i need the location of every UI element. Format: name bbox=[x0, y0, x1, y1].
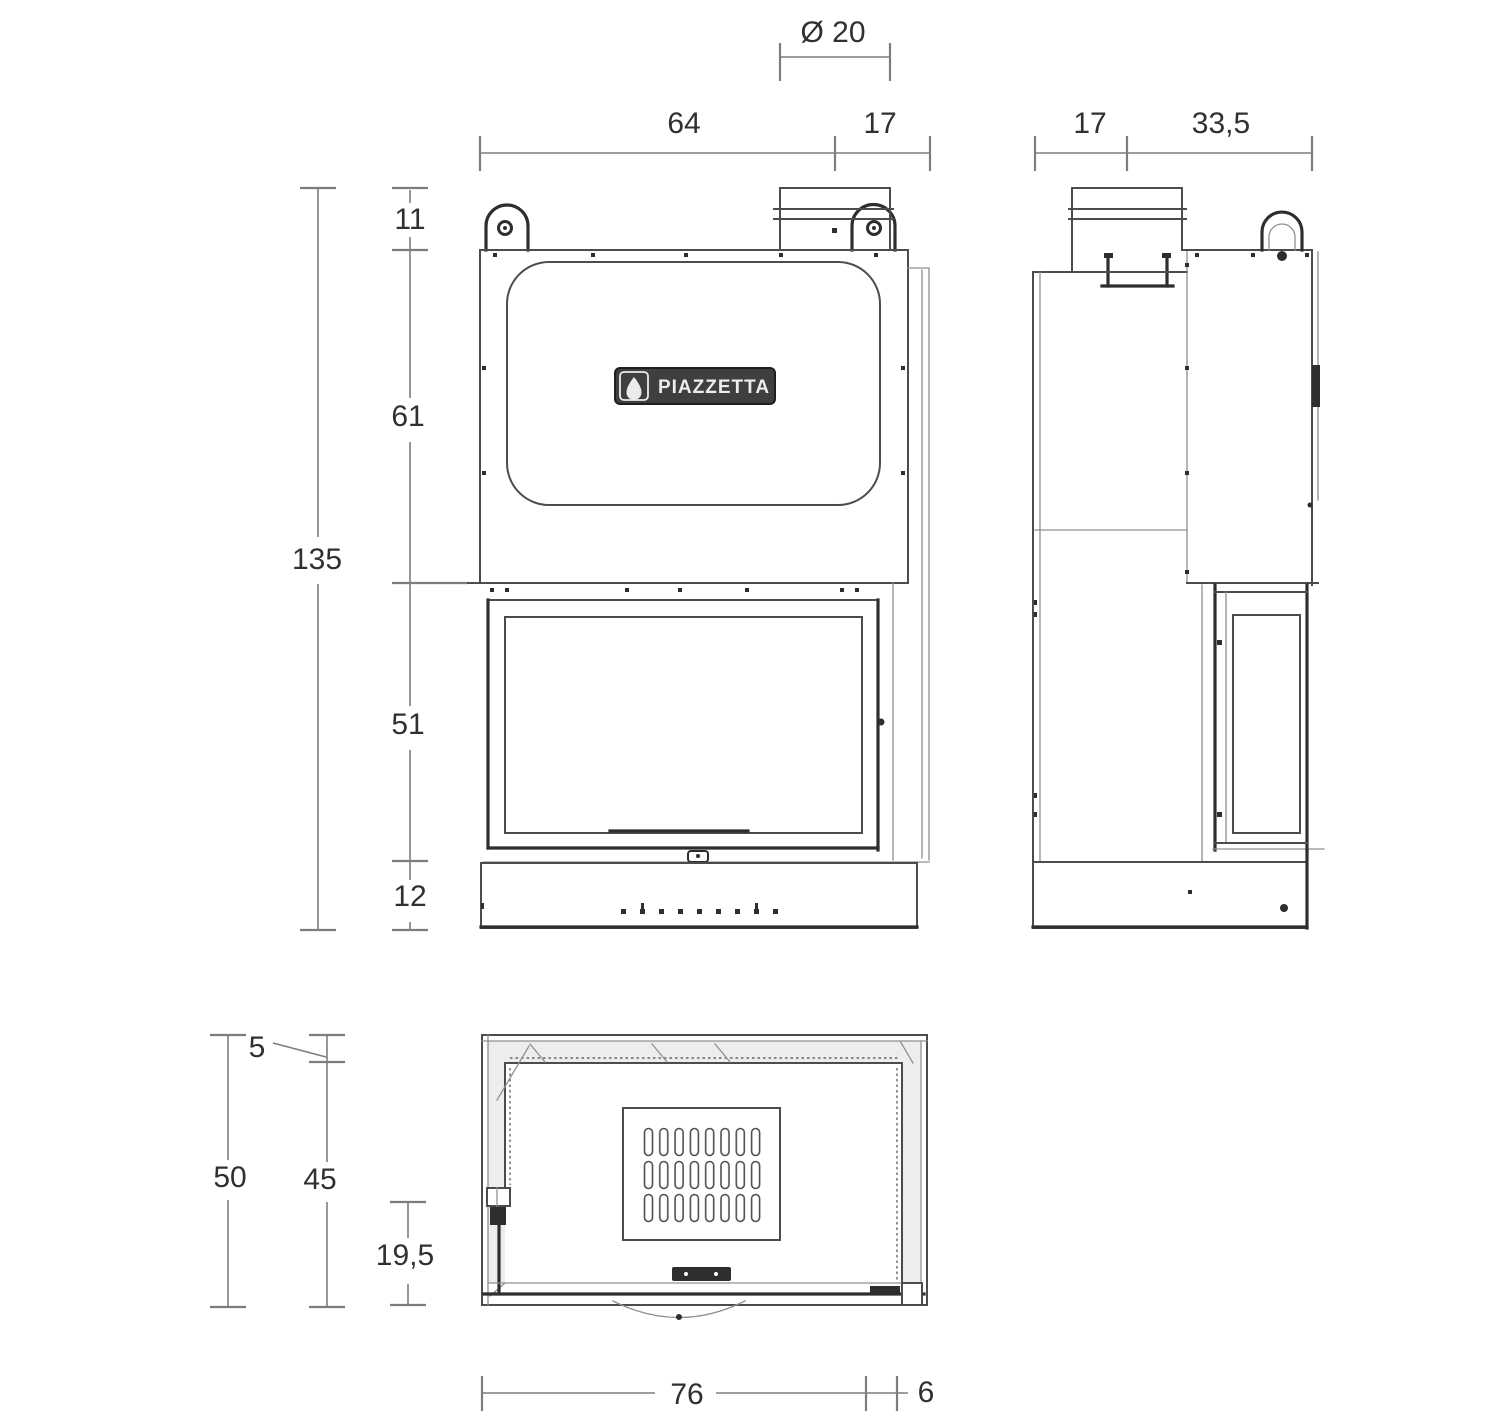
front-door bbox=[468, 583, 929, 862]
grille-slots bbox=[641, 1126, 763, 1224]
front-dim-heights: 135 11 61 51 12 bbox=[292, 188, 468, 930]
hanging-lug-right bbox=[852, 205, 895, 251]
side-view: 17 33,5 bbox=[1033, 107, 1324, 928]
top-latch bbox=[672, 1267, 731, 1281]
dim-label-width-body: 64 bbox=[667, 107, 700, 140]
hanging-lug-left bbox=[486, 205, 528, 250]
dim-label-height-door: 51 bbox=[391, 708, 424, 741]
pipe-clamp-bracket bbox=[1102, 253, 1173, 286]
top-dim-depths: 50 5 45 19,5 bbox=[210, 1031, 434, 1307]
front-base bbox=[481, 863, 917, 928]
fireplace-three-view-drawing: Ø 20 64 17 135 bbox=[0, 0, 1500, 1427]
dim-label-depth-total: 50 bbox=[213, 1161, 246, 1194]
side-door-profile bbox=[1187, 583, 1324, 850]
top-convection-grille bbox=[623, 1108, 780, 1240]
dim-label-height-lug: 11 bbox=[394, 203, 425, 236]
side-door-glass bbox=[1233, 615, 1300, 833]
front-dim-flue-diameter: Ø 20 bbox=[780, 16, 890, 81]
technical-drawing-page: Ø 20 64 17 135 bbox=[0, 0, 1500, 1427]
dim-label-width-body-top: 76 bbox=[670, 1378, 703, 1411]
dim-label-depth-rear: 17 bbox=[1073, 107, 1106, 140]
door-latch bbox=[688, 851, 708, 862]
side-lug bbox=[1262, 212, 1302, 261]
front-view: Ø 20 64 17 135 bbox=[292, 16, 930, 930]
dim-label-depth-inner: 45 bbox=[303, 1163, 336, 1196]
flue-pipe-front bbox=[774, 188, 893, 250]
dim-label-height-total: 135 bbox=[292, 543, 342, 576]
top-view: 50 5 45 19,5 bbox=[210, 1031, 934, 1411]
top-door-edge bbox=[484, 1267, 924, 1320]
side-base bbox=[1033, 850, 1307, 928]
dim-label-width-side-panel: 6 bbox=[918, 1376, 935, 1409]
dim-label-rear-gap: 5 bbox=[249, 1031, 266, 1064]
top-dim-widths: 76 6 bbox=[482, 1376, 934, 1411]
door-hinge-pin bbox=[878, 719, 885, 726]
brand-badge: PIAZZETTA bbox=[615, 368, 775, 404]
front-dim-widths: 64 17 bbox=[480, 107, 930, 171]
dim-label-width-flue-offset: 17 bbox=[863, 107, 896, 140]
leader-line-rear-gap bbox=[273, 1043, 326, 1057]
dim-label-height-base: 12 bbox=[393, 880, 426, 913]
dim-label-height-upper: 61 bbox=[391, 400, 424, 433]
brand-badge-label: PIAZZETTA bbox=[658, 377, 770, 398]
side-hinge-tab bbox=[1312, 365, 1320, 407]
dim-label-depth-front: 33,5 bbox=[1192, 107, 1250, 140]
dim-label-flue-diameter: Ø 20 bbox=[800, 16, 865, 49]
side-dim-depths: 17 33,5 bbox=[1035, 107, 1312, 171]
door-glass bbox=[505, 617, 862, 833]
dim-label-front-section: 19,5 bbox=[376, 1239, 434, 1272]
side-body bbox=[1033, 250, 1320, 862]
